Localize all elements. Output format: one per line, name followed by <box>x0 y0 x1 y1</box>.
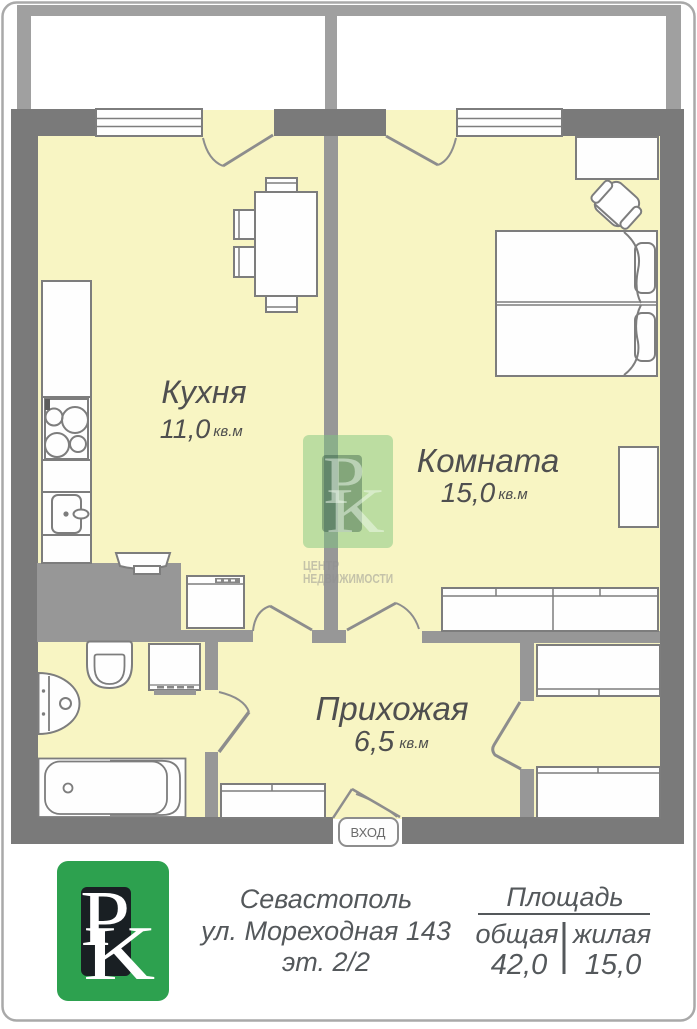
svg-text:Прихожая: Прихожая <box>315 690 468 727</box>
svg-text:Площадь: Площадь <box>506 882 623 912</box>
svg-text:кв.м: кв.м <box>399 735 428 752</box>
svg-text:Севастополь: Севастополь <box>240 884 412 914</box>
svg-text:кв.м: кв.м <box>498 486 527 503</box>
svg-text:кв.м: кв.м <box>213 423 242 440</box>
svg-text:6,5: 6,5 <box>354 726 395 758</box>
svg-text:ул. Мореходная 143: ул. Мореходная 143 <box>199 916 451 946</box>
svg-text:ЦЕНТР: ЦЕНТР <box>303 558 339 573</box>
svg-text:К: К <box>326 476 384 547</box>
svg-text:11,0: 11,0 <box>160 414 211 444</box>
svg-text:ВХОД: ВХОД <box>351 825 386 840</box>
svg-text:НЕДВИЖИМОСТИ: НЕДВИЖИМОСТИ <box>303 573 393 586</box>
svg-text:К: К <box>83 911 155 996</box>
svg-text:общая: общая <box>476 919 559 949</box>
svg-text:15,0: 15,0 <box>441 477 496 508</box>
svg-text:Кухня: Кухня <box>161 374 246 410</box>
svg-text:15,0: 15,0 <box>585 949 641 981</box>
svg-text:жилая: жилая <box>572 919 651 949</box>
svg-text:Комната: Комната <box>417 442 559 479</box>
svg-text:42,0: 42,0 <box>491 949 547 981</box>
svg-text:эт. 2/2: эт. 2/2 <box>282 947 370 977</box>
